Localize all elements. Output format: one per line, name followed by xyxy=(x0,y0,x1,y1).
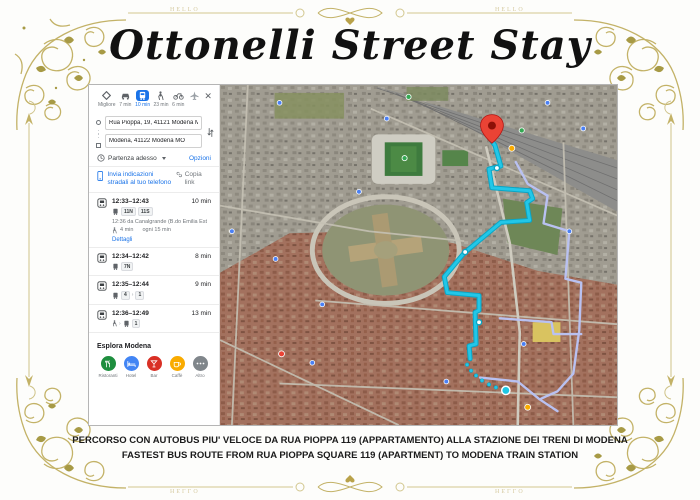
route-option-1[interactable]: 12:33–12:43 10 min 11N 11S 12:36 da Cana… xyxy=(89,193,219,248)
map-park-north xyxy=(275,93,344,119)
walk-icon xyxy=(154,90,167,101)
swap-waypoints-button[interactable] xyxy=(205,116,215,148)
route-option-3[interactable]: 12:35–12:44 9 min 4 › 1 xyxy=(89,276,219,305)
bus-line-badge: 7N xyxy=(121,262,133,271)
poi-orange-marker xyxy=(525,404,531,410)
transit-route-icon xyxy=(97,281,107,291)
waypoint-markers xyxy=(95,116,102,148)
send-directions-row: Invia indicazioni stradali al tuo telefo… xyxy=(89,167,219,193)
right-border-ornament xyxy=(660,95,682,405)
bus-icon xyxy=(112,292,119,299)
explore-coffee[interactable]: Caffè xyxy=(167,356,187,378)
route-duration: 9 min xyxy=(195,281,211,288)
departure-select[interactable]: Partenza adesso xyxy=(108,155,157,162)
caption-line-italian: PERCORSO CON AUTOBUS PIU' VELOCE DA RUA … xyxy=(30,434,670,449)
restaurant-icon xyxy=(101,356,116,371)
route-times: 12:36–12:49 xyxy=(112,310,149,317)
walk-icon xyxy=(112,227,117,234)
bike-icon xyxy=(172,90,185,101)
bus-line-badge: 11N xyxy=(121,207,136,216)
chevron-right-icon: › xyxy=(132,292,134,298)
car-icon xyxy=(119,90,132,101)
border-text: HELLO xyxy=(170,7,200,13)
route-option-4[interactable]: 12:36–12:49 13 min › 1 xyxy=(89,305,219,334)
bus-line-badge: 11S xyxy=(138,207,153,216)
bus-line-badge: 1 xyxy=(132,319,141,328)
bus-icon xyxy=(123,320,130,327)
chevron-down-icon xyxy=(162,157,166,160)
phone-icon xyxy=(97,171,103,181)
destination-input[interactable] xyxy=(105,134,202,148)
waypoint-inputs xyxy=(89,114,219,152)
explore-bars[interactable]: Bar xyxy=(144,356,164,378)
directions-panel: Migliore 7 min 10 min 23 min xyxy=(89,85,220,425)
bar-icon xyxy=(147,356,162,371)
route-times: 12:35–12:44 xyxy=(112,281,149,288)
explore-hotels[interactable]: Hotel xyxy=(121,356,141,378)
bus-icon xyxy=(112,263,119,270)
link-icon xyxy=(176,171,182,178)
transit-route-icon xyxy=(97,198,107,208)
hotel-icon xyxy=(124,356,139,371)
border-text: HELLO xyxy=(495,7,525,13)
transit-route-icon xyxy=(97,253,107,263)
best-route-icon xyxy=(100,90,113,101)
mode-walk[interactable]: 23 min xyxy=(153,90,168,108)
route-frequency-row: 4 min ogni 15 min xyxy=(112,227,211,234)
walk-icon xyxy=(112,320,117,327)
map-oval-park xyxy=(312,197,459,304)
border-text: HELLO xyxy=(495,487,525,493)
satellite-map[interactable] xyxy=(220,85,617,425)
origin-input[interactable] xyxy=(105,116,202,130)
clock-icon xyxy=(97,154,105,162)
copy-link-button[interactable]: Copia link xyxy=(176,171,211,188)
options-button[interactable]: Opzioni xyxy=(189,155,211,162)
explore-more[interactable]: Altro xyxy=(190,356,210,378)
bus-icon xyxy=(136,90,149,101)
google-maps-screenshot: Migliore 7 min 10 min 23 min xyxy=(88,84,618,426)
caption-line-english: FASTEST BUS ROUTE FROM RUA PIOPPA SQUARE… xyxy=(30,449,670,464)
border-text: HELLO xyxy=(170,487,200,493)
mode-bike[interactable]: 6 min xyxy=(172,90,185,108)
route-duration: 13 min xyxy=(191,310,211,317)
route-details-link[interactable]: Dettagli xyxy=(112,237,211,243)
bus-line-badge: 1 xyxy=(135,291,144,300)
mode-flight[interactable] xyxy=(188,90,201,102)
route-duration: 10 min xyxy=(191,198,211,205)
mode-best[interactable]: Migliore xyxy=(98,90,116,108)
explore-section: Esplora Modena Ristoranti Hotel xyxy=(89,333,219,378)
route-times: 12:34–12:42 xyxy=(112,253,149,260)
destination-marker-icon xyxy=(96,143,101,148)
send-to-phone-link[interactable]: Invia indicazioni stradali al tuo telefo… xyxy=(107,171,172,188)
flight-icon xyxy=(188,90,201,101)
map-sports-pitch xyxy=(442,150,468,166)
departure-row: Partenza adesso Opzioni xyxy=(89,152,219,167)
route-duration: 8 min xyxy=(195,253,211,260)
route-option-2[interactable]: 12:34–12:42 8 min 7N xyxy=(89,248,219,277)
close-icon[interactable]: ✕ xyxy=(204,91,212,102)
more-icon xyxy=(193,356,208,371)
transit-route-icon xyxy=(97,310,107,320)
bus-line-badge: 4 xyxy=(121,291,130,300)
map-park-north2 xyxy=(407,87,449,101)
bus-icon xyxy=(112,208,119,215)
map-yellow-building xyxy=(533,322,561,342)
chevron-right-icon: › xyxy=(119,321,121,327)
route-times: 12:33–12:43 xyxy=(112,198,149,205)
origin-marker[interactable] xyxy=(502,386,510,394)
coffee-icon xyxy=(170,356,185,371)
bottom-border-ornament: HELLO HELLO xyxy=(0,470,700,500)
caption: PERCORSO CON AUTOBUS PIU' VELOCE DA RUA … xyxy=(30,434,670,463)
mode-drive[interactable]: 7 min xyxy=(119,90,132,108)
poi-orange-marker xyxy=(509,145,515,151)
poi-red-marker xyxy=(279,351,285,357)
page-title: Ottonelli Street Stay xyxy=(0,22,700,69)
explore-title: Esplora Modena xyxy=(97,343,211,350)
travel-mode-bar: Migliore 7 min 10 min 23 min xyxy=(89,85,219,114)
explore-restaurants[interactable]: Ristoranti xyxy=(98,356,118,378)
route-departure-info: 12:36 da Canalgrande (B.do Emilia Est xyxy=(112,219,211,225)
left-border-ornament xyxy=(18,95,40,405)
mode-transit[interactable]: 10 min xyxy=(135,90,150,108)
